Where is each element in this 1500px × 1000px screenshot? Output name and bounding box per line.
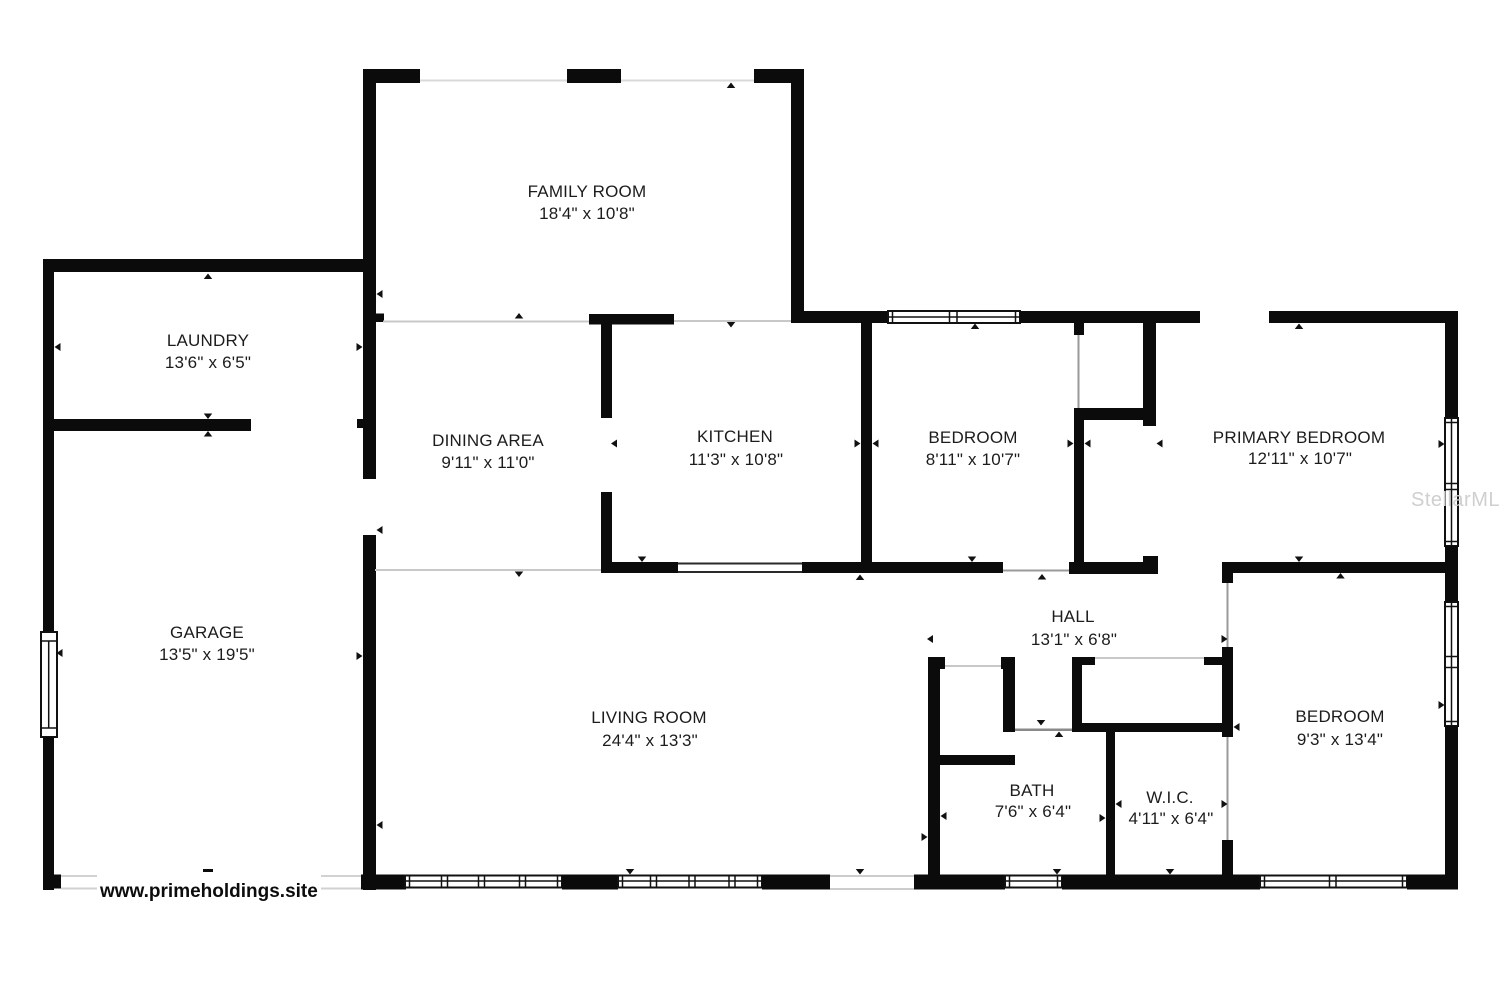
svg-text:12'11" x 10'7": 12'11" x 10'7"	[1248, 449, 1352, 468]
svg-text:GARAGE: GARAGE	[170, 623, 244, 642]
svg-text:PRIMARY BEDROOM: PRIMARY BEDROOM	[1213, 428, 1385, 447]
svg-text:9'3" x 13'4": 9'3" x 13'4"	[1297, 730, 1383, 749]
svg-text:LIVING ROOM: LIVING ROOM	[591, 708, 707, 727]
svg-text:HALL: HALL	[1051, 607, 1094, 626]
svg-text:11'3" x 10'8": 11'3" x 10'8"	[689, 450, 784, 469]
svg-text:7'6" x 6'4": 7'6" x 6'4"	[995, 802, 1072, 821]
svg-text:FAMILY ROOM: FAMILY ROOM	[528, 182, 647, 201]
svg-text:9'11" x 11'0": 9'11" x 11'0"	[441, 453, 534, 472]
svg-text:8'11" x 10'7": 8'11" x 10'7"	[926, 450, 1021, 469]
svg-text:13'1" x 6'8": 13'1" x 6'8"	[1031, 630, 1117, 649]
svg-text:BEDROOM: BEDROOM	[928, 428, 1017, 447]
svg-text:BATH: BATH	[1010, 781, 1055, 800]
svg-text:LAUNDRY: LAUNDRY	[167, 331, 249, 350]
svg-text:18'4" x 10'8": 18'4" x 10'8"	[539, 204, 635, 223]
svg-text:13'6" x 6'5": 13'6" x 6'5"	[165, 353, 251, 372]
svg-text:www.primeholdings.site: www.primeholdings.site	[99, 881, 318, 902]
svg-text:DINING AREA: DINING AREA	[432, 431, 544, 450]
svg-text:W.I.C.: W.I.C.	[1146, 788, 1193, 807]
svg-text:24'4" x 13'3": 24'4" x 13'3"	[602, 731, 698, 750]
svg-text:13'5" x 19'5": 13'5" x 19'5"	[159, 645, 255, 664]
svg-text:4'11" x 6'4": 4'11" x 6'4"	[1129, 809, 1214, 828]
svg-text:StellarMLS: StellarMLS	[1411, 489, 1500, 511]
svg-text:BEDROOM: BEDROOM	[1295, 707, 1384, 726]
svg-text:KITCHEN: KITCHEN	[697, 427, 773, 446]
